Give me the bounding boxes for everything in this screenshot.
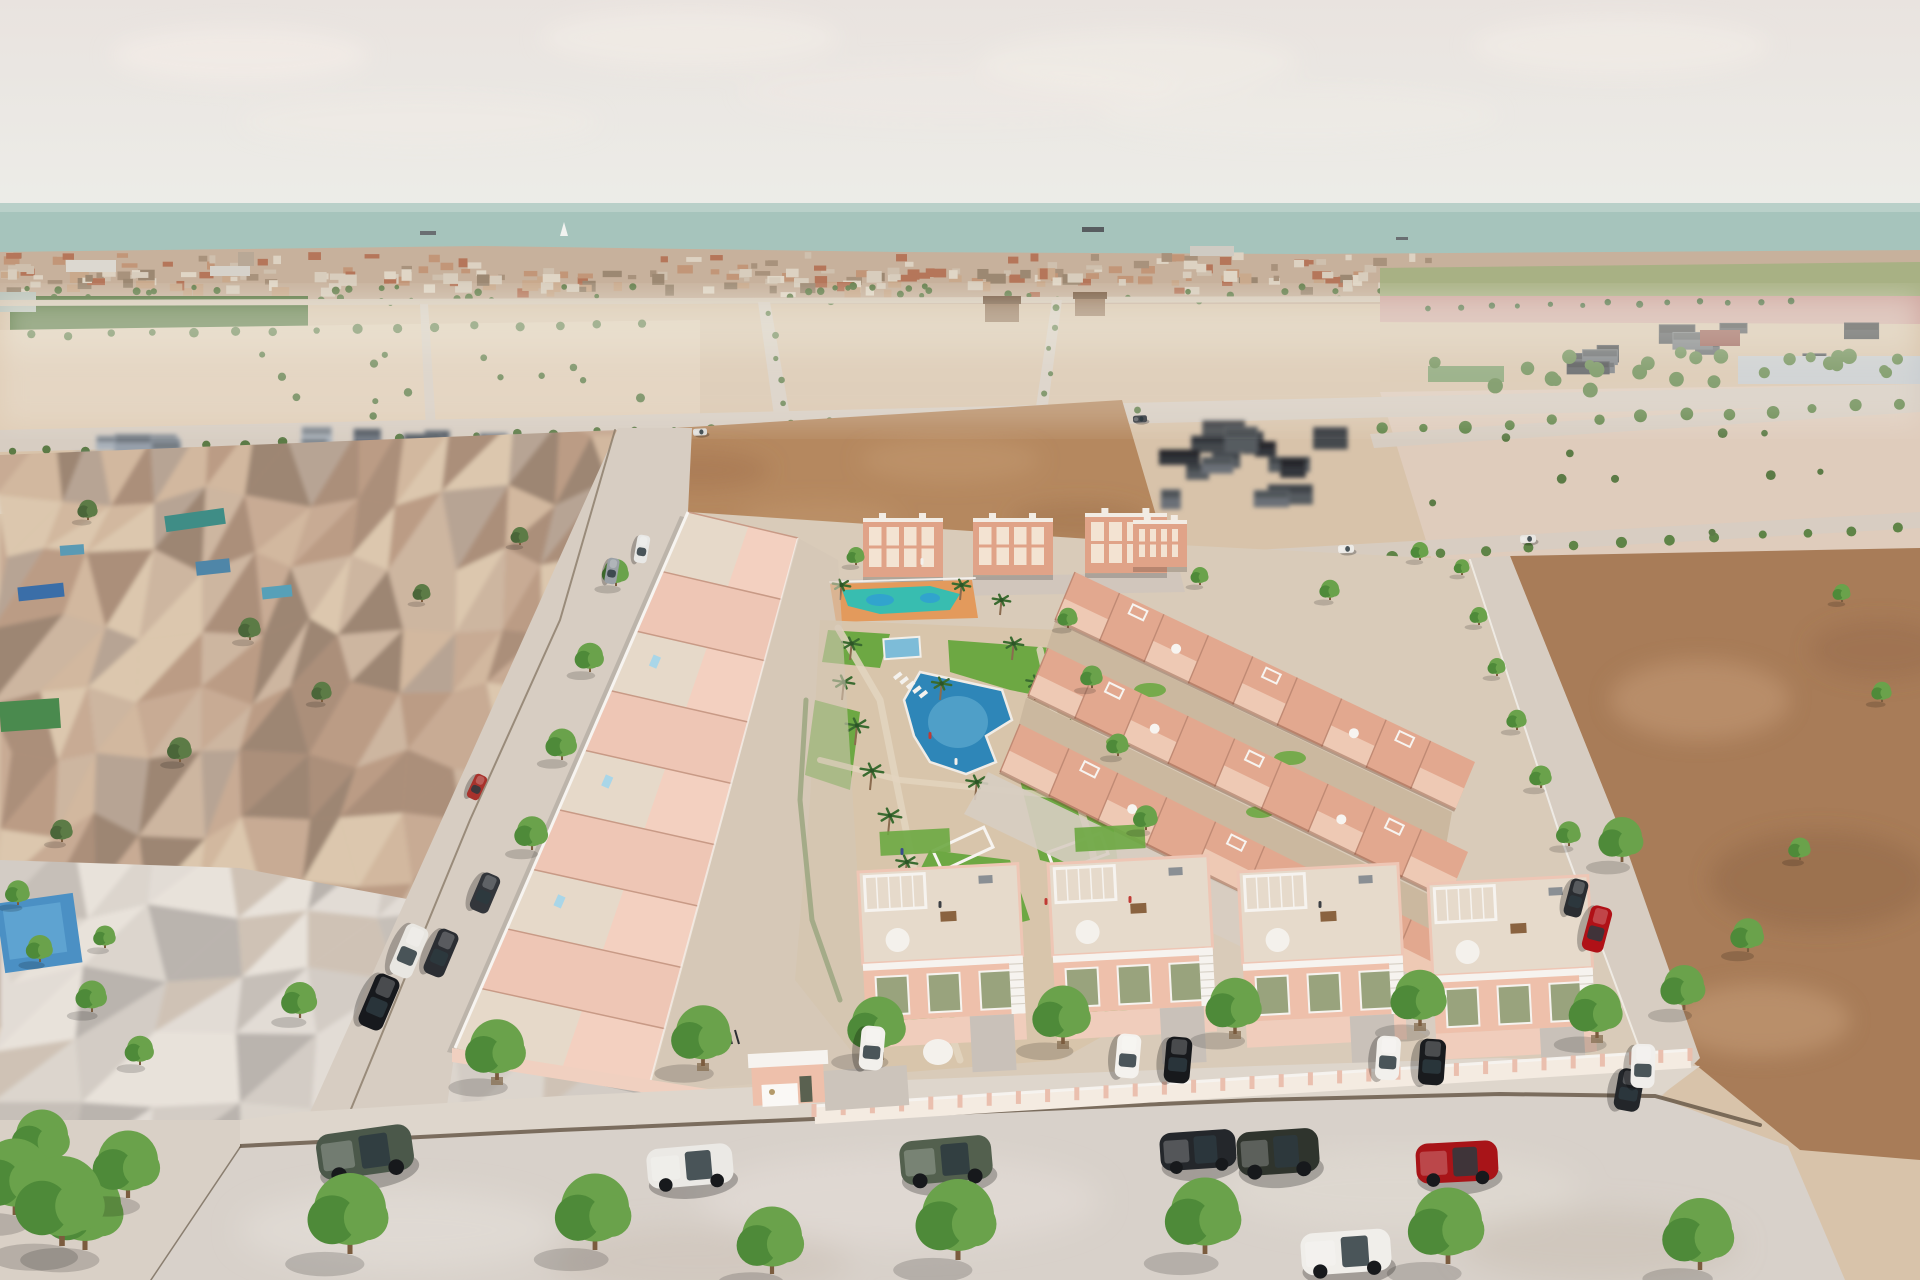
tree-foliage xyxy=(855,552,865,562)
apartment-window xyxy=(887,527,900,546)
apartment-window xyxy=(1032,527,1045,545)
city-building xyxy=(888,282,901,288)
palm-crown xyxy=(888,813,892,817)
apartment-window xyxy=(1172,545,1178,558)
city-building xyxy=(686,257,701,262)
tree-foliage xyxy=(698,1022,731,1055)
tree-shadow xyxy=(1100,755,1122,762)
tree-shadow xyxy=(567,671,596,680)
car-glass xyxy=(940,1142,970,1176)
wall-pier xyxy=(1512,1059,1517,1072)
scatter-tree xyxy=(832,285,837,290)
wall-pier xyxy=(958,1095,963,1108)
tree-shadow xyxy=(87,947,109,954)
tree-shadow xyxy=(505,849,538,859)
villa-table xyxy=(1320,911,1337,922)
row-tree xyxy=(1846,527,1856,537)
city-landmarks xyxy=(210,266,250,276)
city-building xyxy=(429,255,440,262)
car-roof-highlight xyxy=(1121,1036,1137,1052)
city-building xyxy=(877,283,886,289)
car-glass xyxy=(358,1132,391,1169)
wall-pier xyxy=(1279,1074,1284,1087)
villa-bbq xyxy=(1358,875,1372,884)
villa-window xyxy=(1117,965,1151,1005)
scatter-tree xyxy=(345,285,352,292)
tree-foliage xyxy=(90,989,107,1006)
tree-foliage xyxy=(1066,613,1077,624)
car-roof-highlight xyxy=(865,1028,881,1044)
tree-shadow xyxy=(1144,1252,1219,1275)
tree-foliage xyxy=(1593,999,1623,1029)
tree-shadow xyxy=(534,1248,609,1271)
city-building xyxy=(661,256,668,262)
apartment-window xyxy=(1014,548,1027,566)
tree-foliage xyxy=(519,532,529,542)
city-building xyxy=(949,270,958,279)
scatter-tree xyxy=(1718,428,1728,438)
wall-pier xyxy=(1337,1070,1342,1083)
entrance-logo xyxy=(769,1089,775,1095)
city-building xyxy=(1307,260,1313,264)
palm-crown xyxy=(870,768,874,772)
tree-shadow xyxy=(1483,676,1501,681)
city-building xyxy=(628,275,636,279)
scatter-tree xyxy=(474,289,481,296)
building-roof xyxy=(1314,428,1347,437)
apartment-shadow xyxy=(1133,567,1187,572)
tree-shadow xyxy=(232,639,254,646)
building-roof xyxy=(302,427,331,434)
city-building xyxy=(1196,264,1206,272)
tree-foliage xyxy=(38,943,53,958)
city-building xyxy=(85,275,92,282)
tree-shadow xyxy=(1314,599,1334,605)
tree-foliage xyxy=(123,1149,160,1186)
apartment-window xyxy=(997,548,1010,566)
city-building xyxy=(1409,254,1415,262)
city-building xyxy=(1134,261,1149,268)
palm-crown xyxy=(855,723,859,727)
car-glass xyxy=(862,1045,880,1060)
tree-shadow xyxy=(18,961,44,969)
city-building xyxy=(6,253,21,259)
city-building xyxy=(384,271,396,279)
city-building xyxy=(737,265,748,269)
stair-step xyxy=(1199,963,1213,964)
apartment-window xyxy=(922,549,935,568)
car-roof-highlight xyxy=(320,1140,355,1172)
entrance xyxy=(799,1076,812,1103)
city-building xyxy=(547,290,555,297)
city-building xyxy=(1294,260,1304,267)
city-building xyxy=(132,272,149,278)
city-building xyxy=(1086,265,1102,269)
city-building xyxy=(1020,270,1031,279)
scatter-tree xyxy=(146,290,152,296)
wall-pier xyxy=(1600,1054,1605,1067)
city-building xyxy=(786,269,799,278)
tree-foliage xyxy=(1090,672,1102,684)
row-tree xyxy=(1759,531,1767,539)
villa-table xyxy=(1510,923,1527,934)
tree-foliage xyxy=(1695,1218,1735,1258)
person xyxy=(1045,898,1048,905)
scatter-tree xyxy=(1761,430,1768,437)
tree-foliage xyxy=(1539,772,1551,784)
city-building xyxy=(365,254,380,258)
city-building xyxy=(468,262,482,268)
tree-shadow xyxy=(842,565,860,570)
stair-step xyxy=(1011,995,1025,996)
row-tree xyxy=(1436,548,1446,558)
apartment-chimney xyxy=(919,513,926,518)
wall-pier xyxy=(1045,1089,1050,1102)
clouds xyxy=(110,27,370,83)
city-building xyxy=(315,272,327,282)
city-building xyxy=(805,252,812,258)
city-building xyxy=(226,285,239,293)
stair-step xyxy=(1009,971,1023,972)
car-glass xyxy=(1168,1057,1188,1072)
main-pool-light xyxy=(928,696,988,748)
row-tree xyxy=(1804,529,1813,538)
scatter-tree xyxy=(394,285,399,290)
tree-shadow xyxy=(1126,829,1150,836)
city-building xyxy=(1184,261,1198,270)
person xyxy=(939,901,942,908)
palm-crown xyxy=(1011,641,1015,645)
dirt-right-mottle xyxy=(1710,830,1920,930)
city-landmarks xyxy=(66,260,116,272)
apartment-window xyxy=(1150,529,1156,542)
tree-shadow xyxy=(160,761,184,768)
building-roof xyxy=(1255,491,1288,498)
apartment-shadow xyxy=(973,575,1053,580)
city-building xyxy=(652,274,664,285)
apartment-chimney xyxy=(1101,508,1108,513)
scatter-tree xyxy=(1566,450,1574,458)
row-tree xyxy=(9,448,16,455)
stair-step xyxy=(1009,963,1023,964)
kids-water xyxy=(920,593,940,603)
villa-window xyxy=(1497,985,1531,1025)
city-building xyxy=(727,274,739,280)
tree-shadow xyxy=(271,1017,306,1028)
stair-step xyxy=(1010,987,1024,988)
city-building xyxy=(1345,255,1351,261)
wall-pier xyxy=(1542,1057,1547,1070)
dirt-right-mottle xyxy=(1610,660,1790,740)
tree-shadow xyxy=(285,1252,364,1276)
palm-crown xyxy=(975,780,979,784)
apartment-block xyxy=(863,518,943,577)
city-building xyxy=(578,274,593,279)
stair-step xyxy=(1579,975,1593,976)
villa-window xyxy=(1359,970,1393,1010)
apartment-window xyxy=(887,549,900,568)
scatter-tree xyxy=(1766,470,1776,480)
city-building xyxy=(264,270,276,274)
tree-foliage xyxy=(86,505,97,516)
city-building xyxy=(524,271,537,276)
car-glass xyxy=(1379,1055,1397,1069)
city-building xyxy=(273,256,281,264)
city-building xyxy=(1271,264,1278,271)
city-building xyxy=(888,268,900,276)
tree-shadow xyxy=(1186,585,1204,590)
tree-foliage xyxy=(1328,585,1339,596)
apartment-window xyxy=(1109,522,1122,541)
stair-step xyxy=(1010,979,1024,980)
tree-foliage xyxy=(1619,830,1644,855)
tree-foliage xyxy=(767,1225,804,1262)
tree-shadow xyxy=(1782,859,1804,866)
city-building xyxy=(48,280,63,284)
city-building xyxy=(163,262,173,267)
wall-pier xyxy=(1191,1080,1196,1093)
city-building xyxy=(402,269,412,281)
city-building xyxy=(1365,265,1377,273)
city-building xyxy=(459,258,468,267)
city-building xyxy=(1183,272,1192,279)
villa-driveway xyxy=(970,1014,1017,1072)
villa-window xyxy=(1169,962,1203,1002)
sea xyxy=(0,203,1920,212)
palm-crown xyxy=(999,598,1003,602)
wall-pier xyxy=(1308,1072,1313,1085)
apartment-block xyxy=(973,518,1053,575)
apartment-roof-edge xyxy=(1133,520,1187,524)
car-sedan-red xyxy=(1415,1140,1503,1197)
car-sedan-white-driving xyxy=(1300,1228,1397,1280)
building-roof xyxy=(1226,427,1257,437)
wall-pier xyxy=(1074,1087,1079,1100)
kids-water xyxy=(866,594,894,606)
tree-shadow xyxy=(1586,861,1630,875)
city-building xyxy=(567,284,580,292)
city-building xyxy=(136,281,155,289)
tree-shadow xyxy=(594,585,620,593)
city-building xyxy=(123,279,133,288)
city-building xyxy=(1224,271,1238,282)
apartment-window xyxy=(997,527,1010,545)
city-building xyxy=(769,277,780,283)
scatter-tree xyxy=(1502,433,1511,442)
umbrella xyxy=(1171,644,1181,654)
city-building xyxy=(443,273,458,284)
tree-foliage xyxy=(589,1195,631,1237)
scatter-tree xyxy=(1299,283,1306,290)
scatter-tree xyxy=(1709,529,1716,536)
apartment-window xyxy=(1109,544,1122,563)
wall-pier xyxy=(1483,1061,1488,1074)
building-roof xyxy=(1203,458,1233,464)
main-pool-light xyxy=(928,696,988,748)
car-roof-highlight xyxy=(1381,1038,1396,1053)
car-drive-white-3 xyxy=(1622,1043,1655,1091)
city-building xyxy=(63,253,74,259)
scatter-tree xyxy=(1611,475,1619,483)
car-roof-highlight xyxy=(904,1148,937,1177)
city-building xyxy=(461,269,470,273)
car-glass xyxy=(1118,1053,1136,1068)
tree-foliage xyxy=(1681,978,1706,1003)
wall-pier xyxy=(1571,1055,1576,1068)
row-tree xyxy=(1664,535,1675,546)
building-roof xyxy=(1160,450,1199,456)
tree-shadow xyxy=(408,602,426,607)
scatter-tree xyxy=(1429,499,1436,506)
city-building xyxy=(477,274,489,285)
tree-shadow xyxy=(537,759,568,769)
tree-foliage xyxy=(1199,1199,1241,1241)
building-roof xyxy=(354,429,380,436)
villa-window xyxy=(1446,988,1480,1028)
apartment-window xyxy=(1139,545,1145,558)
apartment-window xyxy=(1139,529,1145,542)
apartment-window xyxy=(1091,544,1104,563)
city-building xyxy=(1008,257,1018,264)
city-building xyxy=(1138,276,1153,284)
kids-area xyxy=(830,580,978,622)
scatter-tree xyxy=(1332,288,1338,294)
clouds xyxy=(240,96,600,148)
tree-foliage xyxy=(1567,828,1581,842)
car-roof-highlight xyxy=(1163,1139,1190,1163)
scatter-tree xyxy=(561,284,567,290)
city-building xyxy=(890,274,901,280)
car-roof-highlight xyxy=(1636,1046,1651,1061)
scatter-tree xyxy=(332,287,340,295)
city-building xyxy=(1274,276,1280,281)
building-roof xyxy=(1281,459,1305,467)
apartment-window xyxy=(904,549,917,568)
tree-shadow xyxy=(1828,602,1846,607)
stair-step xyxy=(1579,983,1593,984)
tree-foliage xyxy=(1144,812,1158,826)
apartment-roof-edge xyxy=(973,518,1053,522)
tree-foliage xyxy=(1199,572,1209,582)
scatter-tree xyxy=(805,288,812,295)
city-building xyxy=(905,262,914,267)
apartment-window xyxy=(979,548,992,566)
row-tree xyxy=(1481,546,1491,556)
palm-crown xyxy=(839,583,843,587)
city-building xyxy=(1172,280,1179,286)
ships xyxy=(420,231,436,235)
city-building xyxy=(740,269,752,277)
person xyxy=(901,848,904,855)
villa-window xyxy=(1307,973,1341,1013)
tree-foliage xyxy=(1059,1002,1091,1034)
tree-foliage xyxy=(344,1196,389,1241)
umbrella xyxy=(1150,724,1160,734)
city-building xyxy=(768,260,778,266)
clouds xyxy=(1470,16,1770,76)
wall-pier xyxy=(928,1097,933,1110)
scatter-tree xyxy=(133,287,141,295)
apartment-chimney xyxy=(1171,515,1178,520)
tree-shadow xyxy=(1721,951,1754,961)
city-building xyxy=(522,280,538,291)
scatter-tree xyxy=(817,287,825,295)
city-building xyxy=(26,266,34,274)
tree-foliage xyxy=(60,826,72,838)
row-tree xyxy=(42,445,50,453)
scatter-tree xyxy=(1817,469,1823,475)
car-roof-highlight xyxy=(650,1155,680,1181)
row-tree xyxy=(1569,541,1578,550)
city-building xyxy=(983,282,991,292)
apartment-window xyxy=(922,527,935,546)
city-building xyxy=(1322,272,1333,279)
city-building xyxy=(1068,273,1083,282)
tree-foliage xyxy=(1231,994,1262,1025)
tree-shadow xyxy=(506,545,524,550)
mesh-details xyxy=(0,698,61,732)
villa-window xyxy=(927,973,961,1013)
row-tree xyxy=(1616,537,1627,548)
tree-foliage xyxy=(320,687,331,698)
building-roof xyxy=(1256,442,1275,448)
stair-step xyxy=(1201,987,1215,988)
apartment-chimney xyxy=(989,513,996,518)
city-building xyxy=(1343,280,1353,292)
city-building xyxy=(543,274,561,283)
tree-shadow xyxy=(1501,729,1521,735)
wall-pier xyxy=(1133,1083,1138,1096)
city-building xyxy=(614,282,622,291)
apartment-window xyxy=(1150,545,1156,558)
city-building xyxy=(1031,253,1039,261)
city-building xyxy=(8,269,17,279)
city-building xyxy=(199,256,208,262)
car-roof-highlight xyxy=(1420,1151,1448,1176)
wall-pier xyxy=(1658,1050,1663,1063)
city-building xyxy=(926,268,935,277)
car-glass xyxy=(1634,1063,1652,1077)
city-building xyxy=(896,254,907,261)
tree-foliage xyxy=(1880,687,1891,698)
tree-shadow xyxy=(67,1011,98,1021)
city-building xyxy=(665,285,674,296)
tree-foliage xyxy=(1461,564,1470,573)
city-building xyxy=(33,275,42,279)
city-building xyxy=(1358,272,1368,281)
wall-pier xyxy=(1454,1063,1459,1076)
umbrella xyxy=(1336,814,1346,824)
apartment-block xyxy=(1133,520,1187,567)
tree-foliage xyxy=(248,624,260,636)
city-building xyxy=(934,269,947,278)
tree-foliage xyxy=(421,589,431,599)
tree-foliage xyxy=(1478,612,1488,622)
apartment-window xyxy=(979,527,992,545)
apartment-window xyxy=(869,527,882,546)
city-building xyxy=(1172,254,1185,261)
palm-crown xyxy=(959,583,963,587)
wall-pier xyxy=(1220,1078,1225,1091)
scatter-tree xyxy=(24,286,29,291)
building-roof xyxy=(1192,436,1227,443)
tree-foliage xyxy=(1496,663,1506,673)
back-roof-gardens xyxy=(879,828,950,856)
tree-shadow xyxy=(1648,1009,1692,1023)
palm-crown xyxy=(905,860,909,864)
villa-bbq xyxy=(978,875,992,884)
city-building xyxy=(1425,258,1432,263)
